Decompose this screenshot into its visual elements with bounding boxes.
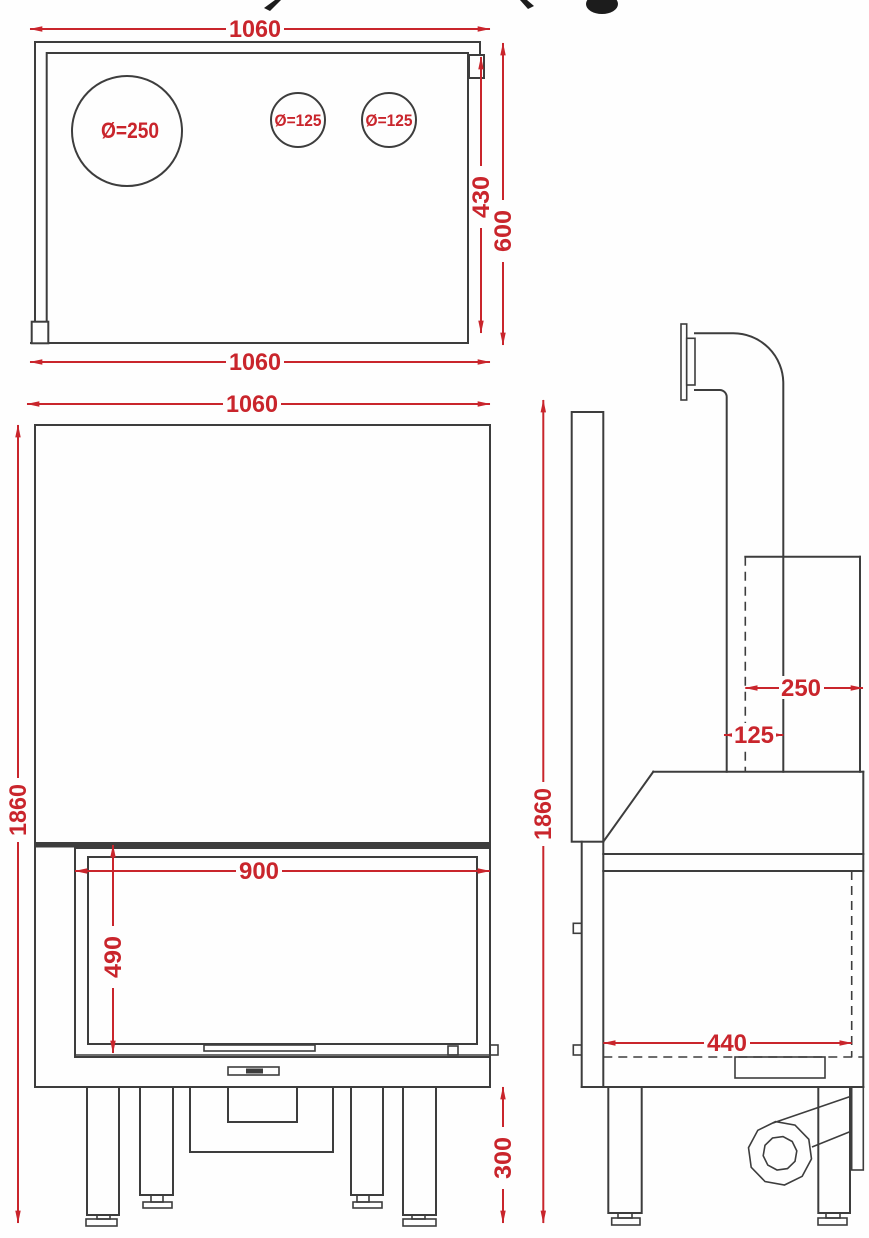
side-leg-right xyxy=(818,1087,850,1225)
dim-glass-height-label: 490 xyxy=(100,936,127,978)
door-glass xyxy=(88,857,477,1044)
fireplace-dimension-drawing: 1060 1060 430 600 Ø=250 Ø=125 Ø=125 xyxy=(0,0,869,1238)
air-hole-left-label: Ø=125 xyxy=(275,111,322,130)
cropped-title-fragments xyxy=(264,0,618,14)
flue-elbow-pipe xyxy=(681,324,783,772)
wall-flange-outer xyxy=(681,324,687,400)
technical-drawing-page: 1060 1060 430 600 Ø=250 Ø=125 Ø=125 xyxy=(0,0,869,1238)
side-vent-slot xyxy=(735,1057,825,1078)
dim-front-height-label: 1860 xyxy=(5,784,32,836)
dim-front-width-label: 1060 xyxy=(226,391,278,418)
rear-strip xyxy=(852,1087,864,1170)
dim-glass-width-label: 900 xyxy=(239,858,279,885)
top-view: 1060 1060 430 600 Ø=250 Ø=125 Ø=125 xyxy=(30,16,517,376)
base-recess-inner xyxy=(228,1087,297,1122)
front-leg-3 xyxy=(351,1087,383,1208)
dim-depth-total-label: 600 xyxy=(490,210,517,252)
door-hinge-tab xyxy=(490,1045,498,1055)
front-body xyxy=(35,425,490,843)
front-leg-1 xyxy=(86,1087,119,1226)
front-leg-2 xyxy=(140,1087,173,1208)
side-view: 1860 250 125 440 xyxy=(530,324,863,1225)
side-tab-lower xyxy=(573,1045,581,1055)
top-view-outline xyxy=(31,42,484,343)
air-hole-right-label: Ø=125 xyxy=(366,111,413,130)
dim-inner-depth-label: 440 xyxy=(707,1030,747,1057)
blower-fan xyxy=(749,1096,852,1185)
flue-hole-label: Ø=250 xyxy=(101,118,159,143)
wall-flange-inner xyxy=(687,338,695,385)
corner-tab xyxy=(32,322,49,344)
front-leg-4 xyxy=(403,1087,436,1226)
dim-top-width-label: 1060 xyxy=(229,16,281,43)
door-lock-square xyxy=(448,1046,458,1055)
door-frame xyxy=(75,848,490,1057)
door-handle-bar xyxy=(204,1045,315,1051)
dim-bottom-width-label: 1060 xyxy=(229,349,281,376)
dim-flue-offset-label: 125 xyxy=(734,722,774,749)
top-view-inner-body xyxy=(47,53,468,343)
back-panel xyxy=(572,412,604,842)
side-leg-left xyxy=(608,1087,641,1225)
dim-flue-pipe-label: 250 xyxy=(781,675,821,702)
dim-side-height-label: 1860 xyxy=(530,788,557,840)
dim-leg-height-label: 300 xyxy=(490,1137,517,1179)
base-recess-outer xyxy=(190,1087,333,1152)
blower-duct-line-upper xyxy=(773,1096,852,1123)
front-view: 1060 1860 900 490 300 xyxy=(5,391,517,1226)
side-tab-upper xyxy=(573,923,581,933)
